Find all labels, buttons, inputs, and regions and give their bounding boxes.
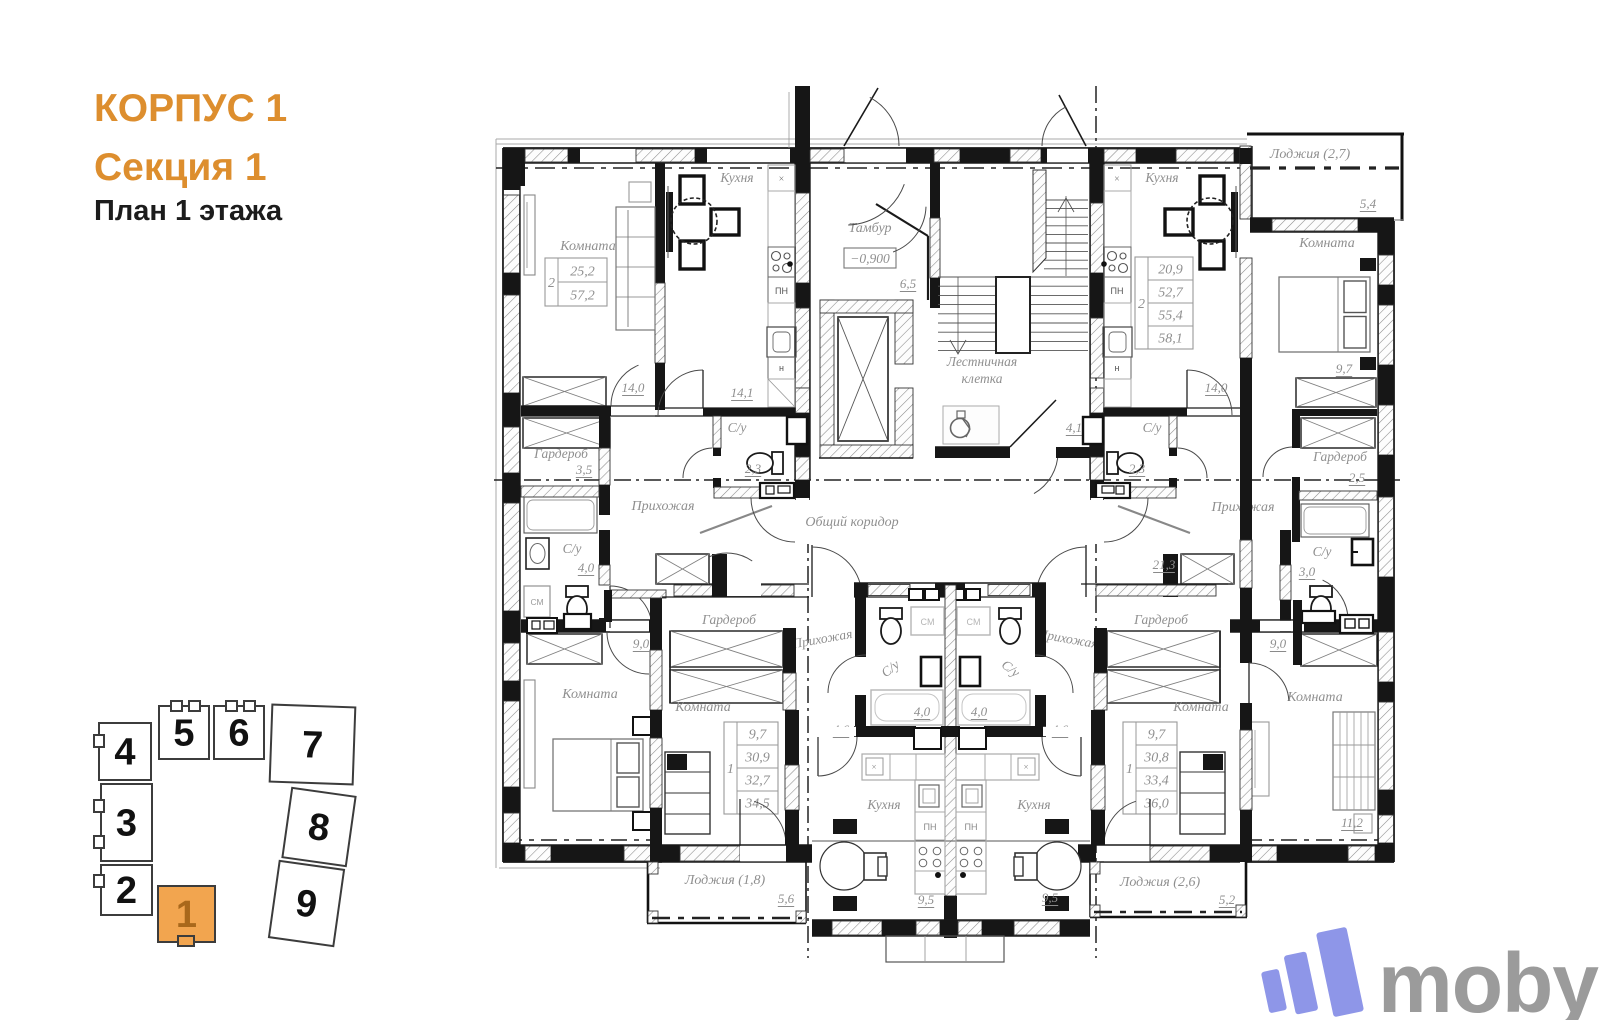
- svg-text:30,9: 30,9: [744, 751, 770, 766]
- svg-text:ПН: ПН: [775, 286, 788, 296]
- svg-text:4,0: 4,0: [578, 560, 595, 575]
- svg-text:3: 3: [116, 803, 137, 845]
- svg-text:25,2: 25,2: [570, 264, 595, 279]
- svg-text:9,7: 9,7: [749, 728, 768, 743]
- svg-text:−0,900: −0,900: [850, 251, 890, 266]
- svg-text:2: 2: [116, 870, 137, 912]
- svg-text:moby: moby: [1378, 936, 1599, 1020]
- svg-text:×: ×: [779, 174, 785, 185]
- svg-text:14,1: 14,1: [731, 385, 754, 400]
- svg-text:ПН: ПН: [1111, 286, 1124, 296]
- svg-text:КОРПУС 1: КОРПУС 1: [94, 87, 287, 130]
- svg-text:3,5: 3,5: [575, 462, 593, 477]
- svg-text:×: ×: [1023, 762, 1028, 772]
- svg-text:9,5: 9,5: [1042, 890, 1059, 905]
- svg-text:СМ: СМ: [967, 617, 981, 627]
- svg-text:20,9: 20,9: [1158, 263, 1183, 278]
- svg-text:Гардероб: Гардероб: [533, 446, 589, 461]
- svg-text:6: 6: [228, 713, 249, 755]
- svg-text:С/у: С/у: [1143, 420, 1162, 435]
- svg-text:1: 1: [1126, 762, 1133, 777]
- svg-text:Лоджия (2,6): Лоджия (2,6): [1119, 875, 1201, 890]
- svg-text:36,0: 36,0: [1143, 797, 1169, 812]
- svg-text:С/у: С/у: [563, 541, 582, 556]
- svg-text:5,2: 5,2: [1219, 892, 1236, 907]
- svg-text:4,1: 4,1: [1066, 420, 1082, 435]
- svg-text:Гардероб: Гардероб: [701, 612, 757, 627]
- svg-text:4: 4: [114, 732, 135, 774]
- svg-text:Гардероб: Гардероб: [1312, 449, 1368, 464]
- svg-text:×: ×: [1114, 174, 1120, 185]
- svg-text:11,2: 11,2: [1341, 815, 1363, 830]
- svg-text:58,1: 58,1: [1158, 332, 1183, 347]
- svg-text:н: н: [1115, 363, 1120, 373]
- svg-text:×: ×: [871, 762, 876, 772]
- svg-text:н: н: [779, 363, 784, 373]
- svg-text:Секция 1: Секция 1: [94, 146, 267, 189]
- svg-text:1: 1: [727, 762, 734, 777]
- svg-text:14,0: 14,0: [622, 380, 645, 395]
- svg-text:9,7: 9,7: [1336, 361, 1353, 376]
- svg-text:2: 2: [1138, 297, 1145, 312]
- svg-text:7: 7: [301, 724, 324, 767]
- svg-text:1: 1: [176, 894, 197, 936]
- svg-text:32,7: 32,7: [744, 774, 771, 789]
- svg-text:Кухня: Кухня: [1144, 170, 1178, 185]
- svg-text:Общий коридор: Общий коридор: [805, 515, 898, 530]
- svg-text:55,4: 55,4: [1158, 309, 1183, 324]
- svg-text:4,0: 4,0: [971, 704, 988, 719]
- svg-text:5: 5: [173, 713, 194, 755]
- svg-text:Комната: Комната: [1298, 236, 1354, 251]
- svg-text:9,0: 9,0: [1270, 636, 1287, 651]
- svg-text:21,3: 21,3: [1153, 557, 1176, 572]
- svg-text:57,2: 57,2: [570, 288, 595, 303]
- svg-text:9,0: 9,0: [633, 636, 650, 651]
- svg-text:52,7: 52,7: [1158, 286, 1184, 301]
- svg-text:2,3: 2,3: [1129, 461, 1146, 476]
- svg-text:клетка: клетка: [961, 371, 1002, 386]
- svg-text:СМ: СМ: [921, 617, 935, 627]
- svg-text:Кухня: Кухня: [719, 170, 753, 185]
- svg-text:6,5: 6,5: [900, 276, 917, 291]
- svg-text:План 1 этажа: План 1 этажа: [94, 195, 283, 227]
- svg-text:СМ: СМ: [530, 597, 543, 607]
- svg-text:Кухня: Кухня: [866, 797, 900, 812]
- svg-text:Лоджия (2,7): Лоджия (2,7): [1269, 147, 1351, 162]
- svg-text:33,4: 33,4: [1143, 774, 1169, 789]
- svg-text:3,0: 3,0: [1298, 564, 1316, 579]
- svg-text:Комната: Комната: [561, 687, 617, 702]
- svg-text:ПН: ПН: [924, 822, 937, 832]
- svg-text:С/у: С/у: [1313, 544, 1332, 559]
- svg-text:30,8: 30,8: [1143, 751, 1169, 766]
- svg-text:Комната: Комната: [674, 700, 730, 715]
- svg-text:Тамбур: Тамбур: [848, 221, 891, 236]
- svg-text:С/у: С/у: [728, 420, 747, 435]
- svg-text:Лоджия (1,8): Лоджия (1,8): [684, 873, 766, 888]
- svg-text:Прихожая: Прихожая: [631, 499, 695, 514]
- svg-text:Комната: Комната: [559, 239, 615, 254]
- svg-text:34,5: 34,5: [744, 797, 770, 812]
- svg-text:Гардероб: Гардероб: [1133, 612, 1189, 627]
- svg-text:Комната: Комната: [1172, 700, 1228, 715]
- svg-text:2,3: 2,3: [745, 461, 762, 476]
- svg-text:5,4: 5,4: [1360, 196, 1377, 211]
- svg-text:14,0: 14,0: [1205, 380, 1228, 395]
- svg-text:4,0: 4,0: [914, 704, 931, 719]
- svg-text:5,6: 5,6: [778, 891, 795, 906]
- svg-text:9,7: 9,7: [1148, 728, 1167, 743]
- svg-text:2,5: 2,5: [1349, 470, 1366, 485]
- svg-text:ПН: ПН: [965, 822, 978, 832]
- svg-text:9,5: 9,5: [918, 892, 935, 907]
- svg-text:Лестничная: Лестничная: [946, 354, 1017, 369]
- svg-text:Комната: Комната: [1286, 690, 1342, 705]
- svg-text:Кухня: Кухня: [1016, 797, 1050, 812]
- svg-text:2: 2: [548, 276, 555, 291]
